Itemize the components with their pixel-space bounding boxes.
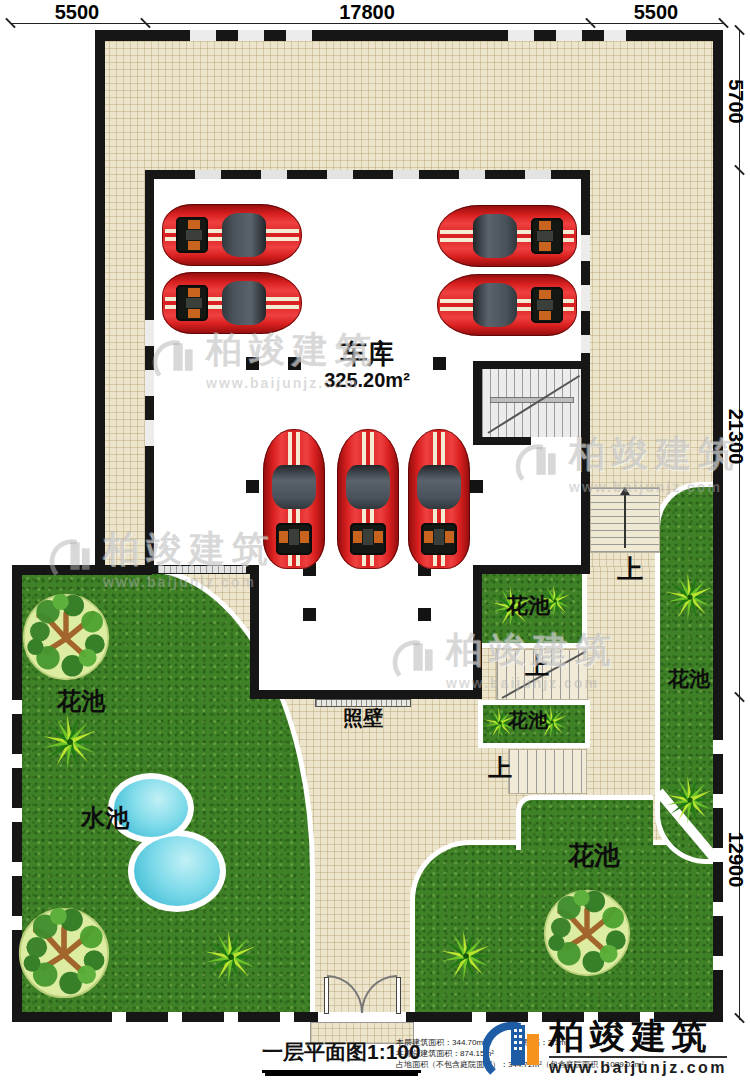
car-engine-part [186,230,202,240]
fern-icon [664,774,716,826]
staircase-railing [490,397,574,403]
car-windshield [417,465,461,509]
car-windshield [473,214,517,258]
fern-icon [40,712,100,772]
car-engine-part [289,529,299,545]
car-engine-part [537,231,553,241]
car-engine-bay [176,217,208,253]
outer-wall-step [12,565,152,575]
tree-icon [21,592,111,682]
dim-top-left: 5500 [27,1,127,24]
sports-car [162,272,302,334]
brand-url: www.baijunjz.com [549,1056,727,1077]
stairs-up-label-middle: 上 [512,653,562,678]
car-engine-part [539,242,551,251]
car-engine-part [434,529,444,545]
sports-car [263,429,325,569]
dim-right-bottom: 12900 [724,810,747,910]
garage-lower-wall-left [250,565,259,699]
car-engine-part [374,531,383,543]
car-windshield [222,213,266,257]
car-engine-bay [531,287,563,323]
structural-column [246,480,259,493]
car-engine-part [188,241,200,250]
brand-text: 柏竣建筑 www.baijunjz.com [549,1018,727,1077]
garage-wall-right-windows [581,235,590,353]
dim-top-center: 17800 [317,1,417,24]
car-engine-bay [421,523,457,555]
steps-arrow-head [620,487,630,495]
garage-wall-bottom [250,690,482,699]
car-engine-part [539,311,551,320]
car-engine-part [188,288,200,297]
brand-logo-icon [483,1018,543,1076]
garage-lower-wall-right [473,565,482,699]
car-engine-part [188,220,200,229]
car-engine-part [363,529,373,545]
car-engine-part [445,531,454,543]
car-windshield [272,465,316,509]
car-engine-part [537,300,553,310]
structural-column [246,357,259,370]
gate-door-leaf-right [396,977,401,1014]
structural-column [303,608,316,621]
garage-floor-lower [250,565,482,699]
sports-car [408,429,470,569]
garage-area-label: 325.20m² [297,370,437,391]
car-engine-part [300,531,309,543]
outer-wall-right-fence [713,700,723,1000]
stair-wall-bottom [473,437,531,445]
car-engine-bay [176,285,208,321]
dim-top-right: 5500 [606,1,706,24]
structural-column [470,480,483,493]
tree-icon [17,906,111,1000]
car-engine-bay [350,523,386,555]
screen-wall-label: 照壁 [315,708,411,729]
gate-opening [318,1012,406,1022]
car-engine-bay [531,218,563,254]
stat-floor-area: 本层建筑面积：344.70m² [396,1038,486,1047]
garage-step-window [158,566,246,573]
garage-wall-top-windows [155,170,575,179]
car-engine-part [279,531,288,543]
outer-wall-bottom-fence [70,1012,300,1022]
flower-bed-label-box-upper: 花池 [478,594,578,617]
car-engine-part [186,298,202,308]
screen-wall [315,699,411,707]
stair-wall-left [473,361,482,445]
car-engine-part [539,290,551,299]
stairs-up-label-east: 上 [605,556,655,583]
floor-plan-canvas: 5500 17800 5500 5700 21300 12900 [0,0,750,1080]
sports-car [437,274,577,336]
outer-wall-left-upper [95,30,105,575]
car-engine-part [353,531,362,543]
car-engine-part [424,531,433,543]
garage-label: 车库 [297,340,437,368]
garage-wall-right [581,170,590,574]
garage-wall-step-right [473,565,590,574]
gate-door-leaf-left [324,977,329,1014]
flower-bed-label-box-lower: 花池 [478,710,578,731]
car-engine-part [188,309,200,318]
car-windshield [222,281,266,325]
car-engine-part [539,221,551,230]
tree-icon [542,888,632,978]
sports-car [337,429,399,569]
dim-right-top: 5700 [724,52,747,152]
flower-bed-label-bottom-right: 花池 [544,842,644,869]
car-windshield [473,283,517,327]
sports-car [437,205,577,267]
brand-name: 柏竣建筑 [549,1018,727,1053]
structural-column [418,608,431,621]
stairs-up-label-lower: 上 [475,755,525,780]
brand-logo: 柏竣建筑 www.baijunjz.com [483,1018,727,1077]
sports-car [162,204,302,266]
car-engine-bay [276,523,312,555]
stair-wall-top [473,361,590,369]
water-pool [134,836,220,906]
fern-icon [664,571,716,623]
fern-icon [438,928,494,984]
steps-arrow [624,492,626,548]
outer-wall-top-windows [508,30,626,41]
fern-icon [202,928,260,986]
flower-bed-label-right-strip: 花池 [639,668,739,690]
outer-wall-top-windows [190,30,312,41]
flower-bed-label-lower-left: 花池 [31,688,131,713]
car-windshield [346,465,390,509]
stat-total-area: 本栋总建筑面积：874.15m² [396,1049,494,1058]
garage-wall-left-windows [145,320,154,470]
water-pool-label: 水池 [55,805,155,830]
dim-right-middle: 21300 [724,387,747,487]
